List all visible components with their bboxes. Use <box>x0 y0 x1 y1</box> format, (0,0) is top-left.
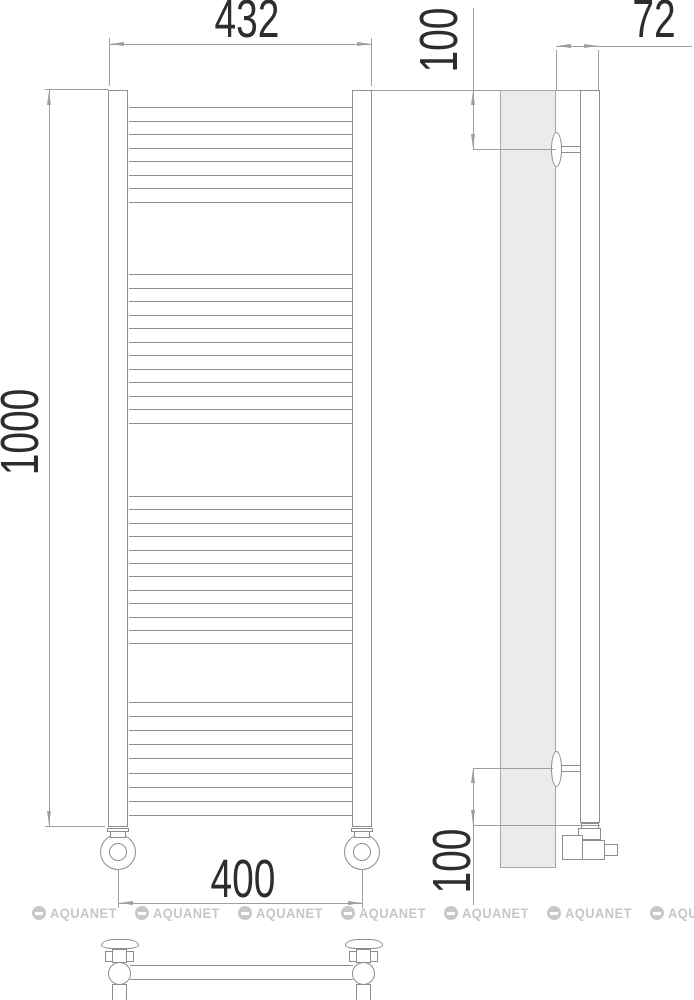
rung-line <box>129 536 352 537</box>
valve-right-collar <box>354 831 370 838</box>
watermark-text: AQUANET <box>565 905 632 921</box>
dim-label-400: 400 <box>207 856 279 902</box>
rung-line <box>129 523 352 524</box>
dim-1000-ext-bottom <box>45 826 105 827</box>
valve-left-collar <box>110 831 126 838</box>
bracket-bottom-rod <box>560 765 581 772</box>
dim-400-arrow-right <box>348 901 362 905</box>
rung-line <box>129 409 352 410</box>
rung-line <box>129 496 352 497</box>
dim-100t-arrow-up <box>471 91 475 105</box>
rung-line <box>129 423 352 424</box>
projection-line-top <box>372 90 600 91</box>
rung-line <box>129 603 352 604</box>
br-tab-left <box>349 951 357 962</box>
rung-line <box>129 576 352 577</box>
rung-line <box>129 188 352 189</box>
rung-line <box>129 563 352 564</box>
aquanet-logo-icon <box>650 906 664 920</box>
br-wall-flange <box>345 939 383 949</box>
dim-72-arrow-right <box>584 44 598 48</box>
rung-line <box>129 815 352 816</box>
rung-line <box>129 161 352 162</box>
rung-line <box>129 396 352 397</box>
rung-line <box>129 509 352 510</box>
br-nut <box>356 949 371 963</box>
aquanet-logo-icon <box>341 906 355 920</box>
aquanet-logo-icon <box>547 906 561 920</box>
br-foot <box>356 984 371 1000</box>
dim-72-ext-right <box>598 50 599 90</box>
valve-left-knob <box>109 843 127 861</box>
aquanet-watermark: AQUANET <box>650 905 694 921</box>
valve-side-spout <box>604 844 618 856</box>
watermark-text: AQUANET <box>668 905 694 921</box>
valve-right-knob <box>353 843 371 861</box>
aquanet-watermark: AQUANET <box>341 905 432 921</box>
rung-line <box>129 801 352 802</box>
bracket-top-rod <box>560 146 581 153</box>
dim-432-arrow-left <box>110 42 124 46</box>
dim-72-ext-left <box>556 50 557 90</box>
br-tab-right <box>370 951 378 962</box>
rung-line <box>129 107 352 108</box>
dim-400-arrow-left <box>119 901 133 905</box>
dim-1000-arrow-up <box>47 91 51 105</box>
bl-tab-left <box>105 951 113 962</box>
rung-line <box>129 550 352 551</box>
wall-section <box>500 90 556 868</box>
towel-radiator-dimension-drawing: AQUANETAQUANETAQUANETAQUANETAQUANETAQUAN… <box>0 0 694 1000</box>
rung-line <box>129 643 352 644</box>
rung-line <box>129 175 352 176</box>
rung-line <box>129 382 352 383</box>
aquanet-logo-icon <box>444 906 458 920</box>
rung-line <box>129 773 352 774</box>
dim-400-ext-right <box>362 869 363 908</box>
bracket-bottom-flange <box>551 751 562 787</box>
br-valve-circle <box>352 962 375 985</box>
dim-72-arrow-left <box>557 44 571 48</box>
dim-432-ext-right <box>371 38 372 86</box>
watermark-text: AQUANET <box>359 905 426 921</box>
dim-label-72: 72 <box>618 0 690 42</box>
dim-label-100-top: 100 <box>416 0 460 79</box>
aquanet-watermark: AQUANET <box>444 905 535 921</box>
left-rail <box>108 90 128 827</box>
rung-line <box>129 342 352 343</box>
bl-nut <box>112 949 127 963</box>
dim-100b-ext-top <box>473 768 553 769</box>
rung-line <box>129 730 352 731</box>
bl-foot <box>112 984 127 1000</box>
valve-side-body <box>582 840 605 860</box>
rung-line <box>129 202 352 203</box>
dim-100b-arrow-up <box>471 769 475 783</box>
watermark-text: AQUANET <box>50 905 117 921</box>
aquanet-logo-icon <box>32 906 46 920</box>
dim-100t-line <box>473 8 474 149</box>
watermark-text: AQUANET <box>462 905 529 921</box>
rung-line <box>129 787 352 788</box>
dim-label-100-bottom: 100 <box>429 821 473 900</box>
aquanet-watermark: AQUANET <box>32 905 123 921</box>
dim-100t-arrow-down <box>471 134 475 148</box>
rung-line <box>129 355 352 356</box>
rung-line <box>129 630 352 631</box>
dim-100b-ext-bottom <box>473 825 600 826</box>
aquanet-logo-icon <box>135 906 149 920</box>
aquanet-watermark: AQUANET <box>547 905 638 921</box>
rung-line <box>129 744 352 745</box>
rung-line <box>129 148 352 149</box>
side-tube <box>580 90 600 823</box>
rung-line <box>129 121 352 122</box>
rung-line <box>129 702 352 703</box>
valve-side-flange <box>562 835 583 860</box>
dim-label-1000: 1000 <box>0 385 43 479</box>
rung-line <box>129 288 352 289</box>
dim-label-432: 432 <box>211 0 283 42</box>
rung-line <box>129 369 352 370</box>
bl-valve-circle <box>108 962 131 985</box>
rung-line <box>129 716 352 717</box>
rung-line <box>129 274 352 275</box>
rung-line <box>129 301 352 302</box>
rung-line <box>129 328 352 329</box>
dim-1000-ext-top <box>45 89 108 90</box>
bl-wall-flange <box>101 939 139 949</box>
rung-line <box>129 134 352 135</box>
rung-line <box>129 617 352 618</box>
right-rail <box>352 90 372 827</box>
rung-line <box>129 758 352 759</box>
bl-tab-right <box>126 951 134 962</box>
dim-432-arrow-right <box>357 42 371 46</box>
rung-line <box>129 590 352 591</box>
bottom-tube <box>130 965 353 980</box>
dim-1000-arrow-down <box>47 811 51 825</box>
rung-line <box>129 315 352 316</box>
dim-100t-ext <box>473 149 556 150</box>
